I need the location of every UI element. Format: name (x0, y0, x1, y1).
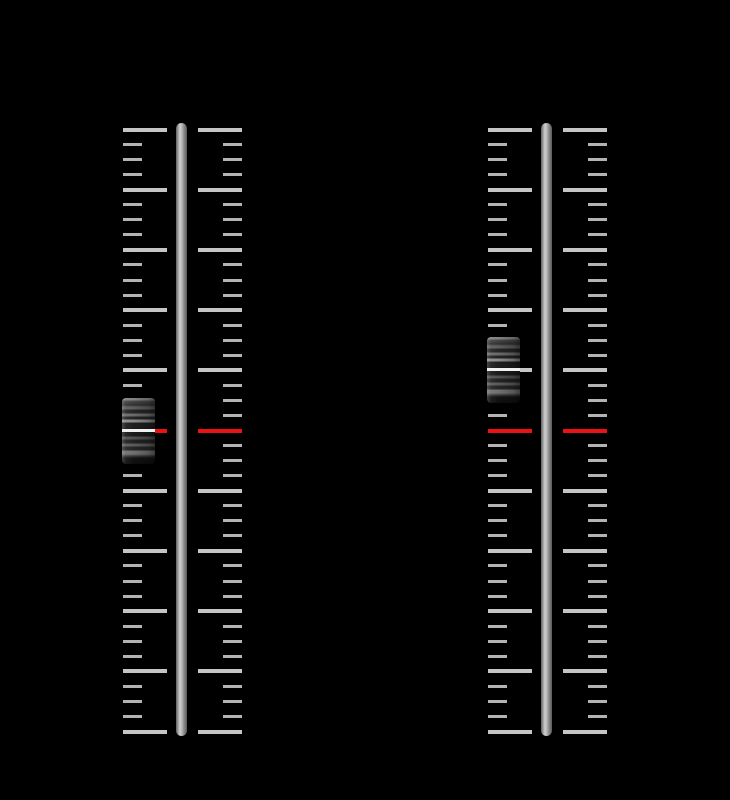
major-tick-right (198, 489, 242, 493)
vertical-fader-right (487, 120, 607, 742)
minor-tick-left (488, 504, 507, 507)
minor-tick-left (488, 143, 507, 146)
minor-tick-right (588, 474, 607, 477)
minor-tick-right (223, 203, 242, 206)
major-tick-right (198, 248, 242, 252)
fader-track[interactable] (541, 123, 552, 736)
minor-tick-left (488, 685, 507, 688)
major-tick-left (123, 308, 167, 312)
major-tick-left (123, 188, 167, 192)
minor-tick-left (123, 625, 142, 628)
center-mark-left (488, 429, 532, 433)
major-tick-right (563, 368, 607, 372)
minor-tick-right (223, 534, 242, 537)
major-tick-left (488, 549, 532, 553)
minor-tick-left (123, 143, 142, 146)
minor-tick-right (223, 459, 242, 462)
minor-tick-left (488, 625, 507, 628)
minor-tick-left (123, 384, 142, 387)
minor-tick-right (223, 595, 242, 598)
minor-tick-left (123, 685, 142, 688)
minor-tick-left (488, 564, 507, 567)
minor-tick-left (488, 414, 507, 417)
minor-tick-right (588, 580, 607, 583)
minor-tick-right (223, 263, 242, 266)
center-mark-right (198, 429, 242, 433)
cap-grip-line (122, 429, 155, 432)
minor-tick-left (488, 459, 507, 462)
minor-tick-left (488, 444, 507, 447)
minor-tick-left (123, 474, 142, 477)
fader-track[interactable] (176, 123, 187, 736)
minor-tick-left (123, 700, 142, 703)
minor-tick-left (123, 233, 142, 236)
minor-tick-right (223, 158, 242, 161)
minor-tick-left (123, 158, 142, 161)
minor-tick-left (488, 218, 507, 221)
minor-tick-right (588, 459, 607, 462)
minor-tick-right (223, 324, 242, 327)
minor-tick-right (588, 685, 607, 688)
minor-tick-right (588, 263, 607, 266)
minor-tick-left (488, 700, 507, 703)
minor-tick-right (588, 444, 607, 447)
mixer-panel (0, 0, 730, 800)
minor-tick-right (588, 324, 607, 327)
minor-tick-right (223, 504, 242, 507)
major-tick-left (488, 188, 532, 192)
minor-tick-right (588, 640, 607, 643)
major-tick-left (123, 248, 167, 252)
major-tick-left (488, 489, 532, 493)
minor-tick-right (588, 715, 607, 718)
minor-tick-left (123, 324, 142, 327)
major-tick-left (123, 128, 167, 132)
minor-tick-right (223, 519, 242, 522)
minor-tick-left (123, 218, 142, 221)
major-tick-left (123, 549, 167, 553)
minor-tick-left (488, 279, 507, 282)
minor-tick-left (488, 595, 507, 598)
minor-tick-left (123, 339, 142, 342)
minor-tick-left (488, 324, 507, 327)
minor-tick-left (123, 564, 142, 567)
minor-tick-left (123, 595, 142, 598)
major-tick-left (123, 730, 167, 734)
minor-tick-left (123, 354, 142, 357)
minor-tick-left (488, 474, 507, 477)
minor-tick-right (223, 354, 242, 357)
minor-tick-left (488, 158, 507, 161)
minor-tick-left (123, 640, 142, 643)
minor-tick-right (223, 700, 242, 703)
major-tick-right (563, 549, 607, 553)
major-tick-left (123, 669, 167, 673)
minor-tick-right (223, 625, 242, 628)
minor-tick-right (588, 414, 607, 417)
minor-tick-left (123, 580, 142, 583)
minor-tick-right (588, 143, 607, 146)
major-tick-right (198, 128, 242, 132)
major-tick-right (563, 248, 607, 252)
minor-tick-right (223, 564, 242, 567)
major-tick-left (488, 669, 532, 673)
major-tick-right (563, 308, 607, 312)
major-tick-left (488, 308, 532, 312)
minor-tick-left (488, 715, 507, 718)
minor-tick-right (588, 218, 607, 221)
minor-tick-right (223, 294, 242, 297)
minor-tick-left (123, 294, 142, 297)
minor-tick-left (123, 715, 142, 718)
major-tick-right (198, 188, 242, 192)
minor-tick-right (588, 504, 607, 507)
minor-tick-left (123, 519, 142, 522)
minor-tick-right (588, 595, 607, 598)
minor-tick-left (123, 203, 142, 206)
minor-tick-left (488, 263, 507, 266)
minor-tick-right (588, 339, 607, 342)
minor-tick-right (588, 158, 607, 161)
minor-tick-left (488, 294, 507, 297)
minor-tick-right (588, 354, 607, 357)
minor-tick-right (223, 685, 242, 688)
cap-grip-line (487, 368, 520, 371)
minor-tick-right (588, 384, 607, 387)
major-tick-right (563, 669, 607, 673)
major-tick-left (488, 248, 532, 252)
major-tick-right (198, 609, 242, 613)
minor-tick-left (123, 173, 142, 176)
fader-cap[interactable] (487, 337, 520, 403)
minor-tick-left (488, 203, 507, 206)
minor-tick-right (223, 233, 242, 236)
minor-tick-right (588, 294, 607, 297)
major-tick-right (198, 669, 242, 673)
minor-tick-left (488, 233, 507, 236)
major-tick-left (123, 609, 167, 613)
minor-tick-left (488, 640, 507, 643)
minor-tick-right (223, 218, 242, 221)
minor-tick-left (123, 504, 142, 507)
minor-tick-left (488, 655, 507, 658)
major-tick-left (123, 368, 167, 372)
major-tick-left (123, 489, 167, 493)
major-tick-right (563, 188, 607, 192)
minor-tick-left (123, 534, 142, 537)
minor-tick-left (123, 263, 142, 266)
minor-tick-right (588, 399, 607, 402)
minor-tick-right (588, 203, 607, 206)
minor-tick-right (223, 279, 242, 282)
major-tick-right (198, 730, 242, 734)
major-tick-left (488, 128, 532, 132)
minor-tick-right (588, 655, 607, 658)
minor-tick-right (588, 233, 607, 236)
major-tick-right (563, 609, 607, 613)
minor-tick-right (223, 399, 242, 402)
minor-tick-right (223, 715, 242, 718)
minor-tick-right (223, 474, 242, 477)
minor-tick-left (488, 173, 507, 176)
minor-tick-right (588, 279, 607, 282)
minor-tick-right (223, 414, 242, 417)
minor-tick-right (223, 384, 242, 387)
minor-tick-right (588, 519, 607, 522)
minor-tick-right (588, 534, 607, 537)
minor-tick-left (123, 655, 142, 658)
major-tick-right (563, 730, 607, 734)
major-tick-left (488, 609, 532, 613)
major-tick-right (563, 128, 607, 132)
major-tick-right (198, 308, 242, 312)
minor-tick-left (488, 519, 507, 522)
minor-tick-right (223, 339, 242, 342)
minor-tick-right (223, 640, 242, 643)
minor-tick-left (488, 534, 507, 537)
major-tick-right (563, 489, 607, 493)
minor-tick-right (223, 444, 242, 447)
center-mark-right (563, 429, 607, 433)
major-tick-right (198, 549, 242, 553)
vertical-fader-left (122, 120, 242, 742)
minor-tick-right (588, 700, 607, 703)
minor-tick-right (223, 173, 242, 176)
minor-tick-right (588, 173, 607, 176)
minor-tick-right (223, 580, 242, 583)
minor-tick-right (588, 625, 607, 628)
minor-tick-left (123, 279, 142, 282)
major-tick-right (198, 368, 242, 372)
minor-tick-right (223, 655, 242, 658)
fader-cap[interactable] (122, 398, 155, 464)
minor-tick-left (488, 580, 507, 583)
minor-tick-right (588, 564, 607, 567)
minor-tick-right (223, 143, 242, 146)
major-tick-left (488, 730, 532, 734)
